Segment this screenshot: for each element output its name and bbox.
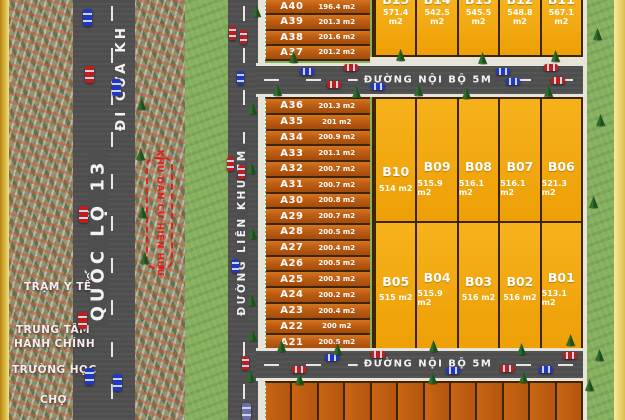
car-icon — [544, 64, 558, 71]
car-icon — [327, 81, 341, 88]
existing-residential-label: KHU DÂN CƯ HIỆN HỮU — [155, 150, 165, 277]
tree-icon — [136, 98, 147, 111]
plot-b: B08 516.1 m2 — [457, 99, 498, 221]
plot-b: B13 545.5 m2 — [457, 0, 498, 55]
tree-icon — [594, 349, 605, 362]
plot-area: 516.1 m2 — [500, 179, 539, 197]
plot-id: A39 — [266, 16, 303, 27]
plot-area: 548.8 m2 — [500, 8, 539, 26]
plot-row-a: A23 200.4 m2 — [266, 304, 370, 320]
car-icon — [240, 30, 247, 44]
frame-left — [0, 0, 9, 420]
tree-icon — [135, 148, 146, 161]
plot-area: 200.3 m2 — [303, 275, 370, 283]
plot-row-a: A29 200.7 m2 — [266, 209, 370, 225]
plot-strip — [292, 383, 318, 420]
car-icon — [79, 206, 88, 223]
poi-label-clinic: TRẠM Y TẾ — [24, 281, 92, 293]
plot-id: A26 — [266, 258, 303, 269]
plot-row-a: A39 201.3 m2 — [266, 15, 370, 30]
plot-id: A32 — [266, 163, 303, 174]
plot-b: B05 515 m2 — [374, 223, 415, 349]
car-icon — [232, 259, 239, 273]
grass-strip-mid — [185, 0, 228, 420]
plot-area: 201.1 m2 — [303, 149, 370, 157]
plot-id: A33 — [266, 148, 303, 159]
plot-id: B06 — [548, 159, 575, 174]
plot-id: B12 — [500, 0, 539, 7]
tree-icon — [595, 114, 606, 127]
residential-area-left — [9, 0, 73, 420]
plot-b: B04 515.9 m2 — [415, 223, 456, 349]
tree-icon — [137, 206, 148, 219]
car-icon — [446, 367, 460, 374]
plot-b: B11 567.1 m2 — [540, 0, 581, 55]
plot-area: 200.7 m2 — [303, 165, 370, 173]
tree-icon — [247, 102, 258, 115]
car-icon — [112, 79, 121, 96]
plot-area: 201.3 m2 — [303, 18, 370, 26]
plot-row-a: A36 201.3 m2 — [266, 99, 370, 115]
plot-id: A30 — [266, 195, 303, 206]
poi-label-admin-line2: HÀNH CHÍNH — [14, 338, 95, 350]
plot-row-a: A35 201 m2 — [266, 115, 370, 131]
tree-icon — [516, 343, 527, 356]
plot-strip — [425, 383, 451, 420]
masterplan-map: QUỐC LỘ 13 ĐI CỬA KH KHU DÂN CƯ HIỆN HỮU… — [0, 0, 625, 420]
plot-id: A25 — [266, 274, 303, 285]
tree-icon — [247, 227, 258, 240]
plot-id: A34 — [266, 132, 303, 143]
tree-icon — [139, 252, 150, 265]
plot-strip — [372, 383, 398, 420]
plot-id: B08 — [465, 159, 492, 174]
tree-icon — [395, 49, 406, 62]
plot-id: B13 — [459, 0, 498, 7]
plot-area: 200.9 m2 — [303, 133, 370, 141]
plot-b: B09 515.9 m2 — [415, 99, 456, 221]
plot-id: B09 — [424, 159, 451, 174]
car-icon — [506, 78, 520, 85]
plot-strip — [530, 383, 556, 420]
tree-icon — [351, 86, 362, 99]
plot-area: 515.9 m2 — [417, 289, 456, 307]
plot-strip — [451, 383, 477, 420]
tree-icon — [550, 50, 561, 63]
plot-area: 515 m2 — [379, 293, 412, 302]
plot-strip — [398, 383, 424, 420]
plot-id: A40 — [266, 1, 303, 12]
tree-icon — [588, 196, 599, 209]
plot-area: 200.2 m2 — [303, 291, 370, 299]
plot-b: B01 513.1 m2 — [540, 223, 581, 349]
tree-icon — [276, 340, 287, 353]
tree-icon — [565, 334, 576, 347]
plot-area: 514 m2 — [379, 184, 412, 193]
plot-id: B05 — [382, 274, 409, 289]
tree-icon — [592, 28, 603, 41]
plot-id: B11 — [542, 0, 581, 7]
plot-b: B02 516 m2 — [498, 223, 539, 349]
plot-row-a: A38 201.6 m2 — [266, 31, 370, 46]
sidewalk — [258, 381, 265, 420]
plot-id: A22 — [266, 321, 303, 332]
plot-row-a: A30 200.8 m2 — [266, 194, 370, 210]
plot-strip — [557, 383, 583, 420]
plot-id: A35 — [266, 116, 303, 127]
car-icon — [113, 374, 122, 391]
plots-b-upper: B10 514 m2 B09 515.9 m2 B08 516.1 m2 B07… — [372, 97, 583, 221]
car-icon — [85, 66, 94, 83]
frame-right — [614, 0, 625, 420]
tree-icon — [245, 370, 256, 383]
car-icon — [227, 157, 234, 171]
plot-area: 201.3 m2 — [303, 102, 370, 110]
plot-id: B07 — [506, 159, 533, 174]
car-icon — [551, 77, 565, 84]
plot-area: 200.7 m2 — [303, 181, 370, 189]
tree-icon — [251, 5, 262, 18]
plot-strip — [504, 383, 530, 420]
car-icon — [500, 365, 514, 372]
plot-area: 567.1 m2 — [542, 8, 581, 26]
plot-area: 515.9 m2 — [417, 179, 456, 197]
plots-bottom-strip — [264, 381, 583, 420]
plot-row-a: A26 200.5 m2 — [266, 257, 370, 273]
plot-row-a: A22 200 m2 — [266, 320, 370, 336]
tree-icon — [543, 85, 554, 98]
plot-row-a: A28 200.5 m2 — [266, 225, 370, 241]
tree-icon — [246, 162, 257, 175]
plot-row-a: A37 201.2 m2 — [266, 46, 370, 59]
existing-residential-box: KHU DÂN CƯ HIỆN HỮU — [146, 157, 173, 269]
plots-b-lower: B05 515 m2 B04 515.9 m2 B03 516 m2 B02 5… — [372, 221, 583, 351]
plot-strip — [345, 383, 371, 420]
plot-strip — [319, 383, 345, 420]
plot-area: 200.4 m2 — [303, 244, 370, 252]
plot-area: 200.5 m2 — [303, 228, 370, 236]
plot-b: B14 542.5 m2 — [415, 0, 456, 55]
plot-id: A23 — [266, 305, 303, 316]
plot-id: B14 — [417, 0, 456, 7]
road-label-internal-bottom: ĐƯỜNG NỘI BỘ 5M — [358, 359, 499, 370]
car-icon — [238, 165, 245, 179]
plot-id: B03 — [465, 274, 492, 289]
plot-area: 516 m2 — [462, 293, 495, 302]
plot-id: B01 — [548, 270, 575, 285]
plot-id: B10 — [382, 164, 409, 179]
poi-label-market: CHỢ — [40, 394, 67, 406]
tree-icon — [461, 87, 472, 100]
plots-a-main: A36 201.3 m2 A35 201 m2 A34 200.9 m2 A33… — [264, 97, 370, 351]
plot-row-a: A25 200.3 m2 — [266, 272, 370, 288]
plot-b: B06 521.3 m2 — [540, 99, 581, 221]
plot-strip — [477, 383, 503, 420]
plot-id: B02 — [506, 274, 533, 289]
plot-row-a: A24 200.2 m2 — [266, 288, 370, 304]
car-icon — [83, 9, 92, 26]
road-direction-label: ĐI CỬA KH — [113, 20, 129, 136]
car-icon — [539, 366, 553, 373]
plot-id: A29 — [266, 211, 303, 222]
plots-a-top: A40 196.4 m2 A39 201.3 m2 A38 201.6 m2 A… — [264, 0, 370, 61]
plot-area: 200.8 m2 — [303, 196, 370, 204]
plot-area: 545.5 m2 — [459, 8, 498, 26]
plot-area: 516.1 m2 — [459, 179, 498, 197]
plot-row-a: A34 200.9 m2 — [266, 131, 370, 147]
car-icon — [242, 356, 249, 370]
plot-b: B03 516 m2 — [457, 223, 498, 349]
plot-id: A27 — [266, 242, 303, 253]
plot-row-a: A40 196.4 m2 — [266, 0, 370, 15]
plot-strip — [266, 383, 292, 420]
plot-area: 200.5 m2 — [303, 259, 370, 267]
plot-area: 196.4 m2 — [303, 3, 370, 11]
car-icon — [292, 366, 306, 373]
plot-id: A28 — [266, 226, 303, 237]
car-icon — [78, 312, 87, 329]
tree-icon — [332, 343, 343, 356]
tree-icon — [288, 51, 299, 64]
plot-area: 513.1 m2 — [542, 289, 581, 307]
car-icon — [229, 26, 236, 40]
tree-icon — [427, 372, 438, 385]
road-label-quoc-lo-13: QUỐC LỘ 13 — [88, 154, 109, 327]
plot-row-a: A31 200.7 m2 — [266, 178, 370, 194]
plot-area: 201.2 m2 — [303, 48, 370, 56]
car-icon — [563, 352, 577, 359]
tree-icon — [246, 294, 257, 307]
poi-label-school: TRƯỜNG HỌC — [12, 364, 97, 376]
plot-b: B10 514 m2 — [374, 99, 415, 221]
tree-icon — [272, 84, 283, 97]
sidewalk — [258, 97, 265, 348]
car-icon — [371, 83, 385, 90]
plot-area: 201.6 m2 — [303, 33, 370, 41]
plot-area: 542.5 m2 — [417, 8, 456, 26]
plot-area: 521.3 m2 — [542, 179, 581, 197]
plot-id: B15 — [376, 0, 415, 7]
car-icon — [371, 351, 385, 358]
car-icon — [300, 68, 314, 75]
tree-icon — [294, 373, 305, 386]
car-icon — [496, 68, 510, 75]
plot-row-a: A27 200.4 m2 — [266, 241, 370, 257]
tree-icon — [413, 84, 424, 97]
plot-row-a: A33 201.1 m2 — [266, 146, 370, 162]
plot-area: 200.4 m2 — [303, 307, 370, 315]
plot-id: A31 — [266, 179, 303, 190]
tree-icon — [518, 371, 529, 384]
tree-icon — [584, 379, 595, 392]
plot-id: A38 — [266, 32, 303, 43]
plot-area: 200 m2 — [303, 322, 370, 330]
tree-icon — [477, 52, 488, 65]
plot-area: 200.7 m2 — [303, 212, 370, 220]
plot-row-a: A32 200.7 m2 — [266, 162, 370, 178]
tree-icon — [247, 329, 258, 342]
car-icon — [344, 64, 358, 71]
plot-b: B15 571.4 m2 — [374, 0, 415, 55]
tree-icon — [428, 340, 439, 353]
car-icon — [85, 368, 94, 385]
plot-id: B04 — [424, 270, 451, 285]
plot-id: A36 — [266, 100, 303, 111]
plot-id: A24 — [266, 289, 303, 300]
plot-area: 516 m2 — [503, 293, 536, 302]
plot-area: 201 m2 — [303, 118, 370, 126]
van-icon — [242, 403, 251, 420]
plot-b: B07 516.1 m2 — [498, 99, 539, 221]
car-icon — [237, 71, 244, 85]
plot-area: 571.4 m2 — [376, 8, 415, 26]
plot-b: B12 548.8 m2 — [498, 0, 539, 55]
